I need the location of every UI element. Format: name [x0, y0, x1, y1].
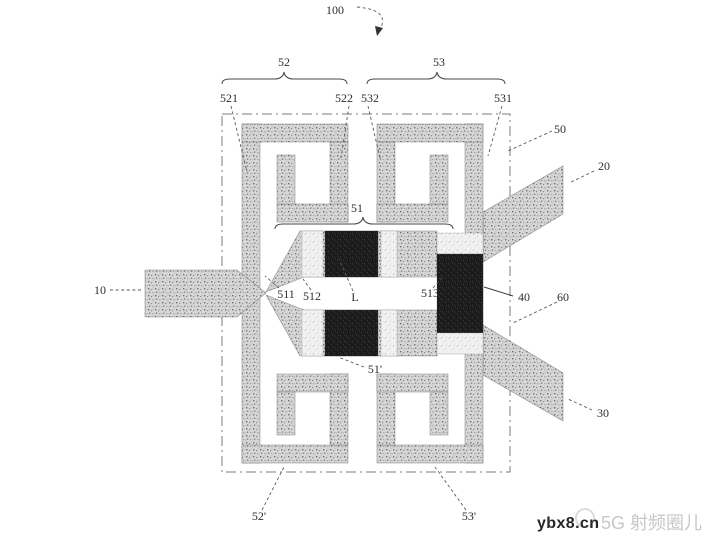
leader-line-40: [484, 287, 513, 296]
label-10: 10: [94, 283, 106, 297]
pad-block-top: [437, 233, 483, 254]
component-block-40: [437, 254, 483, 333]
label-51: 51: [351, 201, 363, 215]
label-512: 512: [303, 289, 321, 303]
arrow-100-head: [375, 26, 383, 36]
label-52p: 52': [252, 509, 266, 523]
label-53: 53: [433, 55, 445, 69]
spiral-arm: [242, 445, 348, 463]
spiral-arm: [430, 392, 448, 435]
pad-block-bottom: [437, 333, 483, 354]
brace-53: [367, 72, 505, 84]
label-522: 522: [335, 91, 353, 105]
gap-block-bottom-2: [381, 310, 397, 356]
spiral-arm: [430, 155, 448, 204]
leader-line-53p: [435, 467, 466, 510]
spiral-arm: [277, 374, 348, 392]
label-30: 30: [597, 406, 609, 420]
label-532: 532: [361, 91, 379, 105]
label-40: 40: [518, 290, 530, 304]
spiral-arm: [277, 392, 295, 435]
label-53p: 53': [462, 509, 476, 523]
gap-block-512-bottom: [302, 310, 323, 356]
output-line-30: [483, 325, 563, 421]
label-20: 20: [598, 159, 610, 173]
leader-line-52p: [262, 467, 284, 510]
gap-block-512-top: [302, 231, 323, 277]
leader-line-50: [508, 131, 552, 151]
inductor-block-L-top: [325, 231, 378, 277]
label-50: 50: [554, 122, 566, 136]
label-51p: 51': [368, 362, 382, 376]
label-52: 52: [278, 55, 290, 69]
patent-figure-page: 100525352152253253150205110511512L513406…: [0, 0, 722, 552]
label-100: 100: [326, 3, 344, 17]
label-531: 531: [494, 91, 512, 105]
leader-line-51p: [338, 357, 364, 367]
watermark-site-text: ybx8.cn: [537, 515, 599, 532]
spiral-arm: [377, 374, 448, 392]
inductor-block-L-bottom: [325, 310, 378, 356]
leader-line-30: [568, 399, 592, 410]
output-line-20: [483, 166, 563, 262]
leader-line-60: [513, 302, 557, 323]
brace-52: [222, 72, 347, 84]
spiral-arm: [377, 445, 483, 463]
label-60: 60: [557, 290, 569, 304]
label-521: 521: [220, 91, 238, 105]
spiral-arm: [277, 155, 295, 204]
label-511: 511: [277, 287, 295, 301]
spiral-arm: [377, 124, 483, 142]
leader-line-20: [569, 171, 594, 183]
spiral-arm: [242, 124, 348, 142]
gap-block-top-2: [381, 231, 397, 277]
spiral-arm: [277, 204, 348, 222]
figure-canvas: 100525352152253253150205110511512L513406…: [0, 0, 722, 552]
label-513: 513: [421, 286, 439, 300]
watermark-community-text: 5G 射频圈儿: [601, 513, 702, 533]
spiral-arm: [377, 204, 448, 222]
watermark: 5G 射频圈儿 ybx8.cn: [537, 509, 702, 533]
label-L: L: [351, 290, 358, 304]
